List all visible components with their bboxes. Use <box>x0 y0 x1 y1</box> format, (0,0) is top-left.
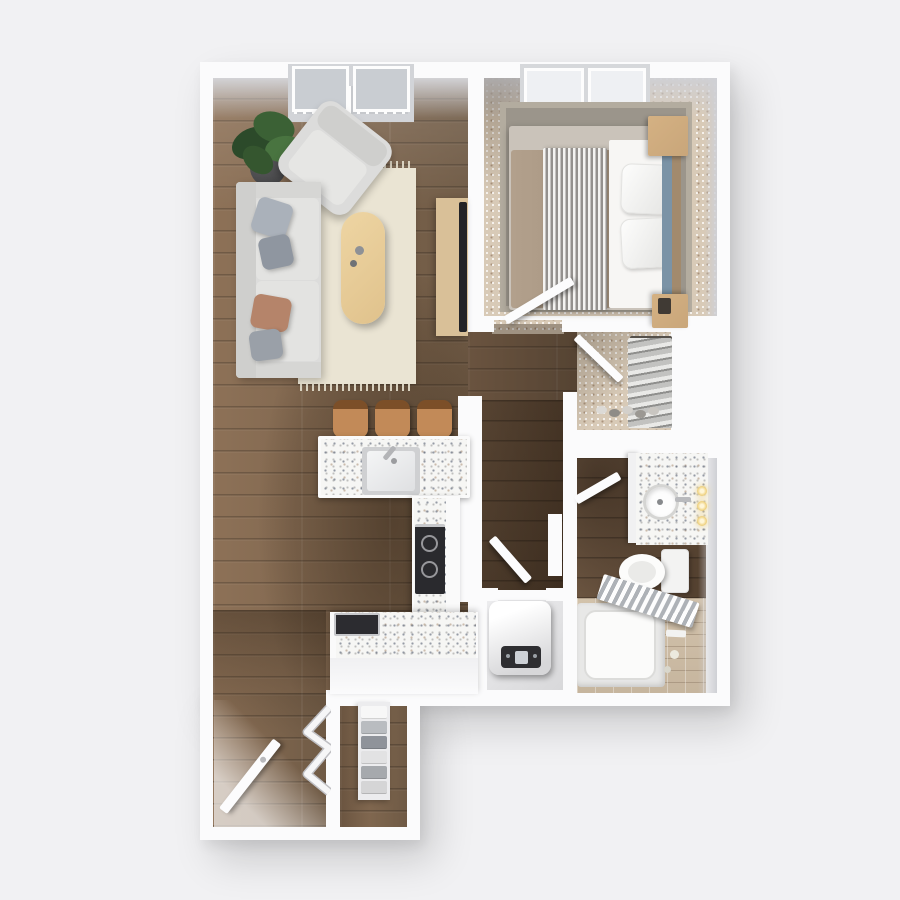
shoe-3 <box>622 406 633 414</box>
toilet-tank <box>661 549 689 593</box>
kitchen-sink-basin <box>367 451 415 491</box>
cabinet-fronts <box>330 658 478 694</box>
towel-ring <box>670 650 679 659</box>
bedroom-south-wall-left <box>468 316 494 332</box>
water-heater-button-left <box>506 654 510 658</box>
living-bedroom-partition <box>468 62 484 324</box>
folded-linen-5 <box>361 766 387 779</box>
throw-pillow-gray-3 <box>248 328 284 362</box>
sofa-arm-bottom <box>256 362 321 378</box>
balcony-door-right <box>353 66 410 112</box>
bathroom-west-wall-top <box>563 450 577 464</box>
folded-linen-6 <box>361 781 387 794</box>
bathroom-west-wall-bottom <box>563 518 577 698</box>
headboard-cushion-blue <box>662 140 672 304</box>
nightstand-north <box>648 116 688 156</box>
tv <box>459 202 467 332</box>
toilet-seat <box>628 561 656 583</box>
bedroom-window-pane-right <box>588 68 646 106</box>
bedroom-window-pane-left <box>524 68 584 106</box>
east-exterior-wall <box>717 62 730 706</box>
bathroom-faucet <box>675 497 691 502</box>
nightstand-decor <box>658 298 671 314</box>
sofa-arm-top <box>256 182 321 198</box>
tub-faucet <box>666 629 686 637</box>
floor-plan-canvas <box>0 0 900 900</box>
water-heater-button-right <box>533 654 537 658</box>
shoe-5 <box>648 407 659 415</box>
folded-linen-2 <box>361 721 387 734</box>
bathtub-basin <box>584 610 656 680</box>
cooktop <box>415 524 445 594</box>
bifold-closet-doors <box>301 704 331 796</box>
kitchen-faucet-base <box>391 458 397 464</box>
wall-oven <box>334 613 380 636</box>
west-exterior-wall <box>200 62 213 840</box>
water-heater-display <box>515 651 528 664</box>
folded-linen-1 <box>361 706 387 719</box>
north-exterior-wall <box>200 62 730 78</box>
utility-north-wall-right <box>546 588 563 601</box>
folded-linen-3 <box>361 736 387 749</box>
sink-drain <box>657 499 663 505</box>
bifold-door-panels <box>307 708 329 792</box>
closet-east-wall-mass <box>671 316 717 438</box>
shoe-2 <box>609 409 620 417</box>
folded-linen-4 <box>361 751 387 764</box>
rug-fringe-bottom <box>300 384 414 391</box>
tub-drain-knob <box>664 666 671 673</box>
utility-north-wall-left <box>458 588 498 601</box>
bar-stool-1 <box>333 400 368 438</box>
burner-2 <box>421 561 438 578</box>
hallway-wall-stub <box>548 514 562 576</box>
south-exterior-wall-left <box>200 827 420 840</box>
bar-stool-2 <box>375 400 410 438</box>
sconce-light-3 <box>697 516 707 526</box>
sconce-light-1 <box>697 486 707 496</box>
bar-stool-3 <box>417 400 452 438</box>
shoe-1 <box>596 406 607 414</box>
front-door-handle <box>259 755 267 763</box>
table-decor-1 <box>355 246 364 255</box>
bedroom-east-wall-face <box>704 76 717 316</box>
water-heater-panel <box>501 646 541 668</box>
hall-opening-shading <box>468 324 577 400</box>
throw-pillow-gray-2 <box>257 233 295 271</box>
burner-1 <box>421 535 438 552</box>
kitchen-hallway-wall <box>458 396 482 602</box>
entry-east-exterior-wall <box>407 700 420 840</box>
table-decor-2 <box>350 260 357 267</box>
throw-pillow-tan <box>249 293 292 333</box>
shoe-4 <box>635 410 646 418</box>
sconce-light-2 <box>697 501 707 511</box>
oval-coffee-table <box>341 212 385 324</box>
